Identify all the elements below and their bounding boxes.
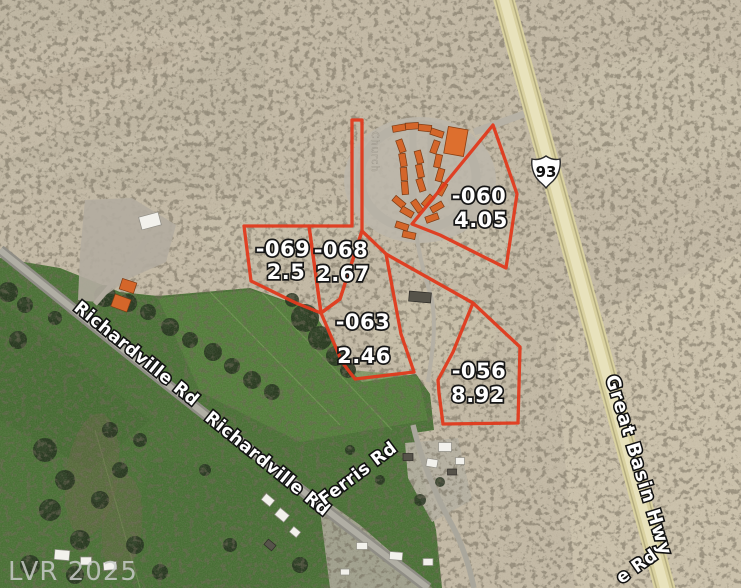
trailer-building: [405, 122, 418, 129]
parcel-056-id-label: -056: [452, 359, 507, 383]
orange-building: [444, 126, 468, 156]
white-building: [439, 443, 452, 452]
parcel-069-acres-label: 2.5: [267, 260, 306, 284]
white-building: [389, 551, 403, 560]
trailer-building: [418, 124, 432, 132]
gray-structure: [448, 469, 457, 475]
white-building: [357, 543, 368, 550]
white-building: [423, 559, 433, 566]
parcel-056-acres-label: 8.92: [451, 383, 505, 407]
trailer-building: [400, 167, 408, 181]
watermark: LVR 2025: [8, 557, 138, 587]
gray-structure: [403, 454, 413, 461]
gray-structure: [409, 291, 432, 303]
trailer-building: [401, 181, 409, 195]
white-building: [341, 569, 350, 575]
highway-shield-number: 93: [536, 163, 557, 181]
parcel-069-id-label: -069: [256, 237, 311, 261]
parcel-063-id-label: -063: [336, 310, 391, 334]
parcel-063-acres-label: 2.46: [337, 344, 391, 368]
white-building: [456, 458, 465, 465]
map-canvas: 93 -069 2.5 -068 2.67 -063 2.46 -060 4.0…: [0, 0, 741, 588]
parcel-068-acres-label: 2.67: [316, 262, 370, 286]
road-label-faint-minor: Church: [369, 131, 380, 172]
white-building: [426, 458, 438, 468]
parcel-068-id-label: -068: [314, 238, 369, 262]
parcel-060-id-label: -060: [452, 184, 507, 208]
satellite-map[interactable]: 93 -069 2.5 -068 2.67 -063 2.46 -060 4.0…: [0, 0, 741, 588]
parcel-060-acres-label: 4.05: [454, 208, 508, 232]
